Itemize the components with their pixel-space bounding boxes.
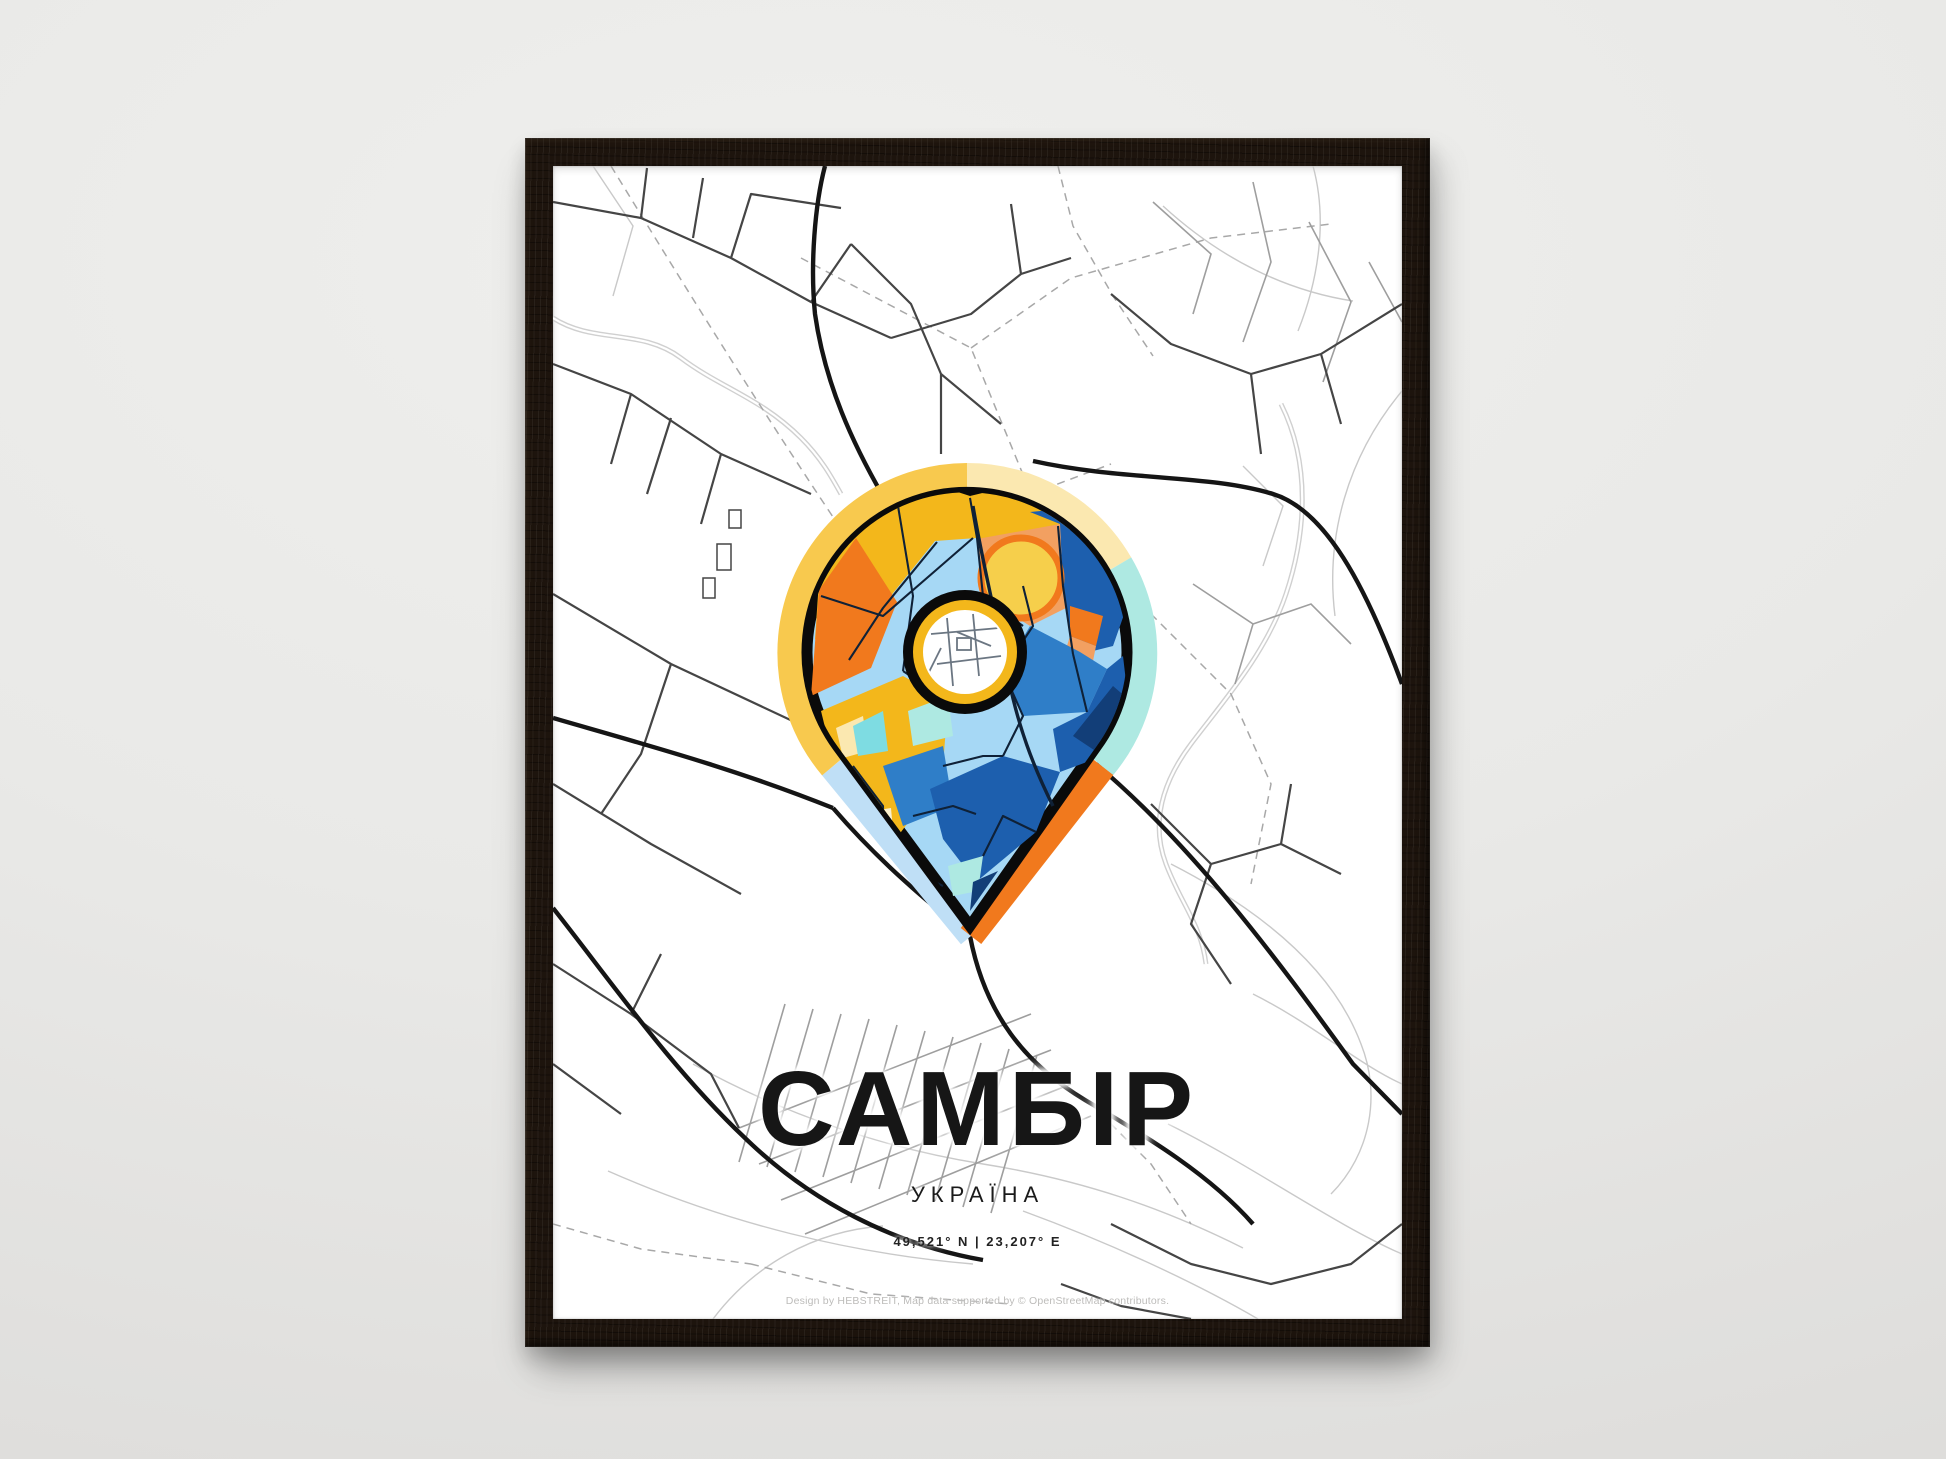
poster-title: САМБІР	[553, 1056, 1402, 1162]
poster-coordinates: 49,521° N | 23,207° E	[553, 1234, 1402, 1249]
picture-frame: САМБІР УКРАЇНА 49,521° N | 23,207° E Des…	[525, 138, 1430, 1347]
map-pin-icon	[790, 471, 1144, 936]
poster-credit: Design by HEBSTREIT, Map data supported …	[553, 1295, 1402, 1307]
wall: { "poster": { "title": "САМБІР", "subtit…	[0, 0, 1946, 1459]
map-poster: САМБІР УКРАЇНА 49,521° N | 23,207° E Des…	[553, 166, 1402, 1319]
poster-subtitle: УКРАЇНА	[553, 1182, 1402, 1208]
ring-roundabout-icon	[903, 590, 1027, 714]
